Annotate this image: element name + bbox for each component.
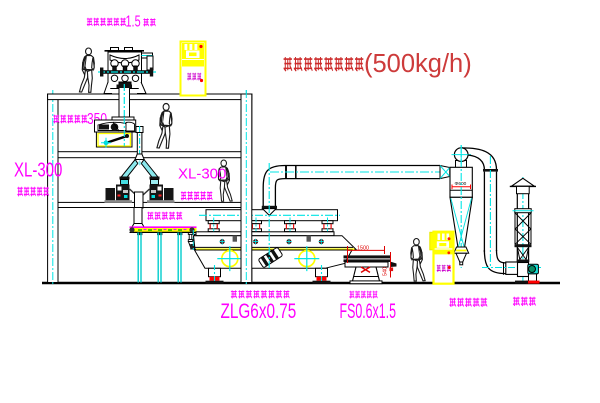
svg-text:1.5: 1.5: [126, 12, 141, 30]
svg-text:ZLG6x0.75: ZLG6x0.75: [221, 299, 297, 323]
svg-text:(500kg/h): (500kg/h): [364, 50, 472, 78]
svg-text:540: 540: [383, 267, 389, 276]
svg-text:XL-300: XL-300: [14, 158, 62, 181]
svg-text:XL-300: XL-300: [178, 166, 226, 183]
svg-text:1500: 1500: [357, 245, 369, 251]
svg-text:Φ600: Φ600: [455, 181, 467, 187]
svg-text:FS0.6x1.5: FS0.6x1.5: [340, 299, 396, 323]
